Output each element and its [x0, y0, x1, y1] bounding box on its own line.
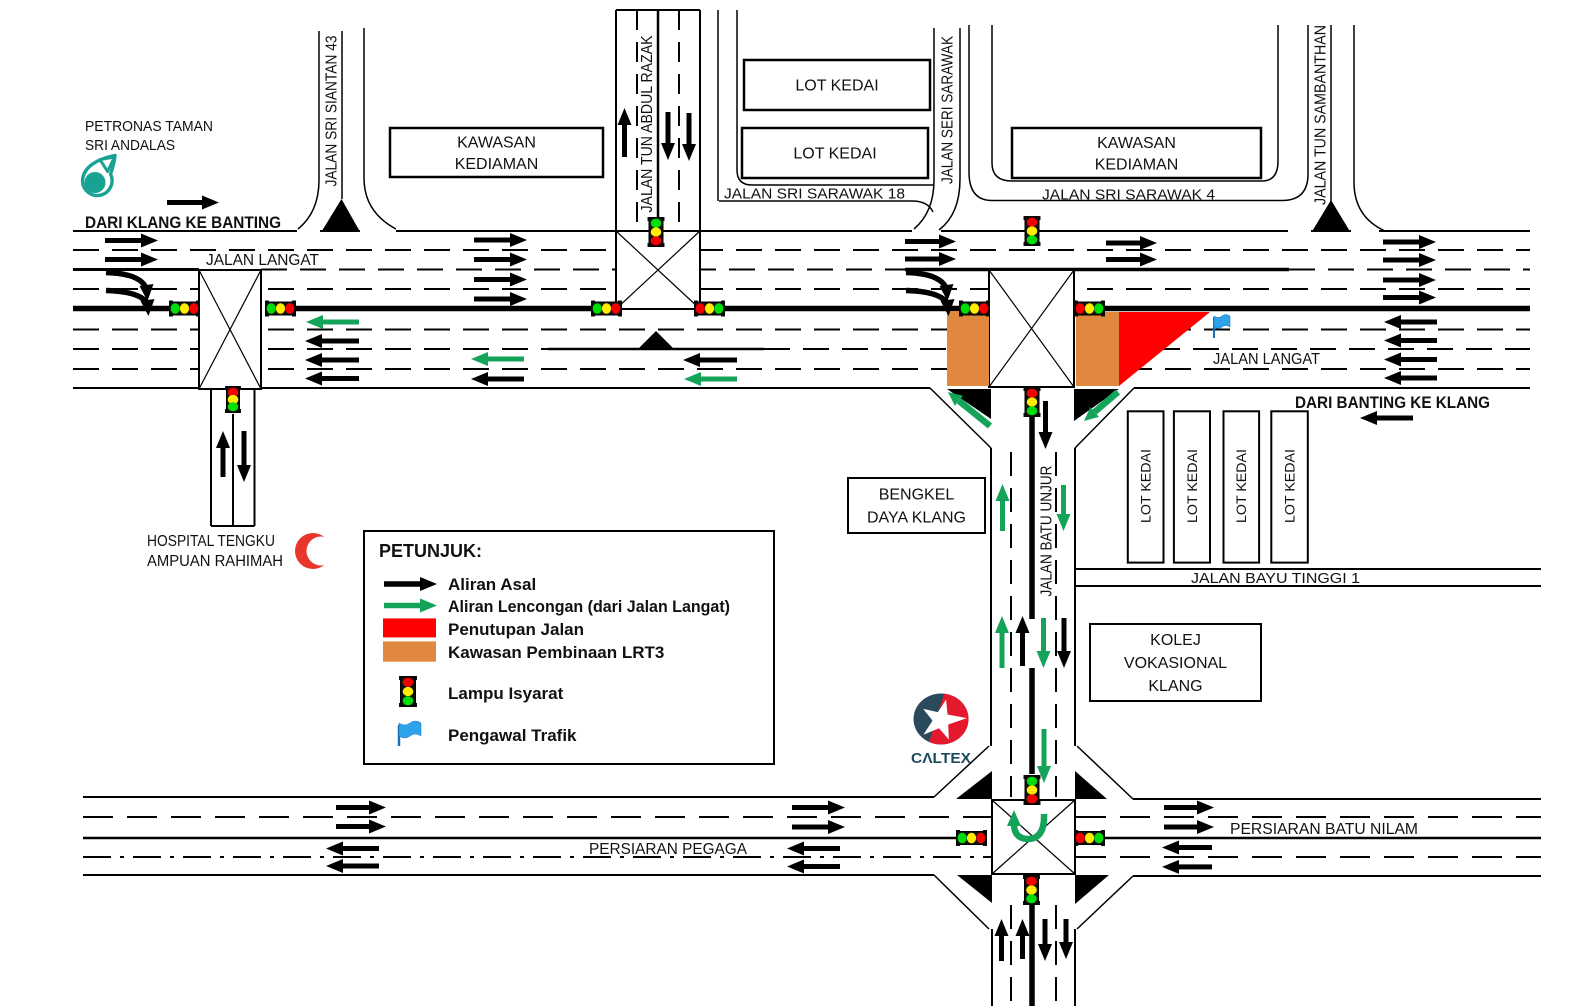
svg-text:PERSIARAN PEGAGA: PERSIARAN PEGAGA: [589, 841, 748, 858]
svg-text:JALAN TUN SAMBANTHAN: JALAN TUN SAMBANTHAN: [1312, 25, 1329, 205]
svg-text:Aliran Lencongan (dari Jalan L: Aliran Lencongan (dari Jalan Langat): [448, 597, 730, 616]
svg-text:PETUNJUK:: PETUNJUK:: [379, 541, 482, 561]
svg-text:LOT KEDAI: LOT KEDAI: [1281, 449, 1297, 523]
svg-text:PERSIARAN BATU NILAM: PERSIARAN BATU NILAM: [1230, 821, 1418, 838]
svg-text:JALAN LANGAT: JALAN LANGAT: [1213, 351, 1320, 368]
svg-text:LOT KEDAI: LOT KEDAI: [795, 78, 878, 95]
svg-text:JALAN SRI SIANTAN 43: JALAN SRI SIANTAN 43: [323, 36, 340, 187]
svg-text:LOT KEDAI: LOT KEDAI: [793, 146, 876, 163]
svg-text:VOKASIONAL: VOKASIONAL: [1124, 655, 1227, 672]
svg-text:JALAN SRI SARAWAK 4: JALAN SRI SARAWAK 4: [1042, 187, 1215, 204]
svg-text:KLANG: KLANG: [1148, 678, 1202, 695]
svg-text:KOLEJ: KOLEJ: [1150, 632, 1201, 649]
svg-text:DARI KLANG KE BANTING: DARI KLANG KE BANTING: [85, 214, 281, 232]
svg-text:DAYA KLANG: DAYA KLANG: [867, 510, 966, 527]
svg-text:CΛLTEX: CΛLTEX: [911, 751, 971, 767]
svg-text:HOSPITAL TENGKU: HOSPITAL TENGKU: [147, 533, 275, 550]
svg-text:Pengawal Trafik: Pengawal Trafik: [448, 726, 577, 745]
svg-text:JALAN SRI SARAWAK 18: JALAN SRI SARAWAK 18: [724, 186, 905, 203]
svg-text:KAWASAN: KAWASAN: [1097, 135, 1176, 152]
svg-text:LOT KEDAI: LOT KEDAI: [1184, 449, 1200, 523]
svg-text:PETRONAS TAMAN: PETRONAS TAMAN: [85, 119, 213, 135]
svg-text:Lampu Isyarat: Lampu Isyarat: [448, 684, 564, 703]
svg-text:JALAN BAYU TINGGI 1: JALAN BAYU TINGGI 1: [1191, 570, 1360, 587]
svg-text:Aliran Asal: Aliran Asal: [448, 575, 536, 594]
svg-text:JALAN BATU UNJUR: JALAN BATU UNJUR: [1038, 466, 1055, 597]
svg-text:LOT KEDAI: LOT KEDAI: [1138, 449, 1154, 523]
svg-text:BENGKEL: BENGKEL: [879, 487, 955, 504]
svg-text:AMPUAN RAHIMAH: AMPUAN RAHIMAH: [147, 553, 283, 570]
svg-text:Penutupan Jalan: Penutupan Jalan: [448, 620, 584, 639]
svg-text:JALAN SERI SARAWAK: JALAN SERI SARAWAK: [939, 35, 956, 184]
svg-text:Kawasan Pembinaan LRT3: Kawasan Pembinaan LRT3: [448, 643, 664, 662]
svg-text:JALAN LANGAT: JALAN LANGAT: [206, 252, 320, 269]
svg-text:LOT KEDAI: LOT KEDAI: [1233, 449, 1249, 523]
svg-text:SRI ANDALAS: SRI ANDALAS: [85, 138, 175, 154]
svg-text:JALAN TUN ABDUL RAZAK: JALAN TUN ABDUL RAZAK: [639, 35, 656, 213]
svg-text:KEDIAMAN: KEDIAMAN: [1095, 156, 1179, 173]
svg-text:KAWASAN: KAWASAN: [457, 134, 536, 151]
svg-text:DARI BANTING KE KLANG: DARI BANTING KE KLANG: [1295, 394, 1490, 412]
svg-text:KEDIAMAN: KEDIAMAN: [455, 156, 539, 173]
